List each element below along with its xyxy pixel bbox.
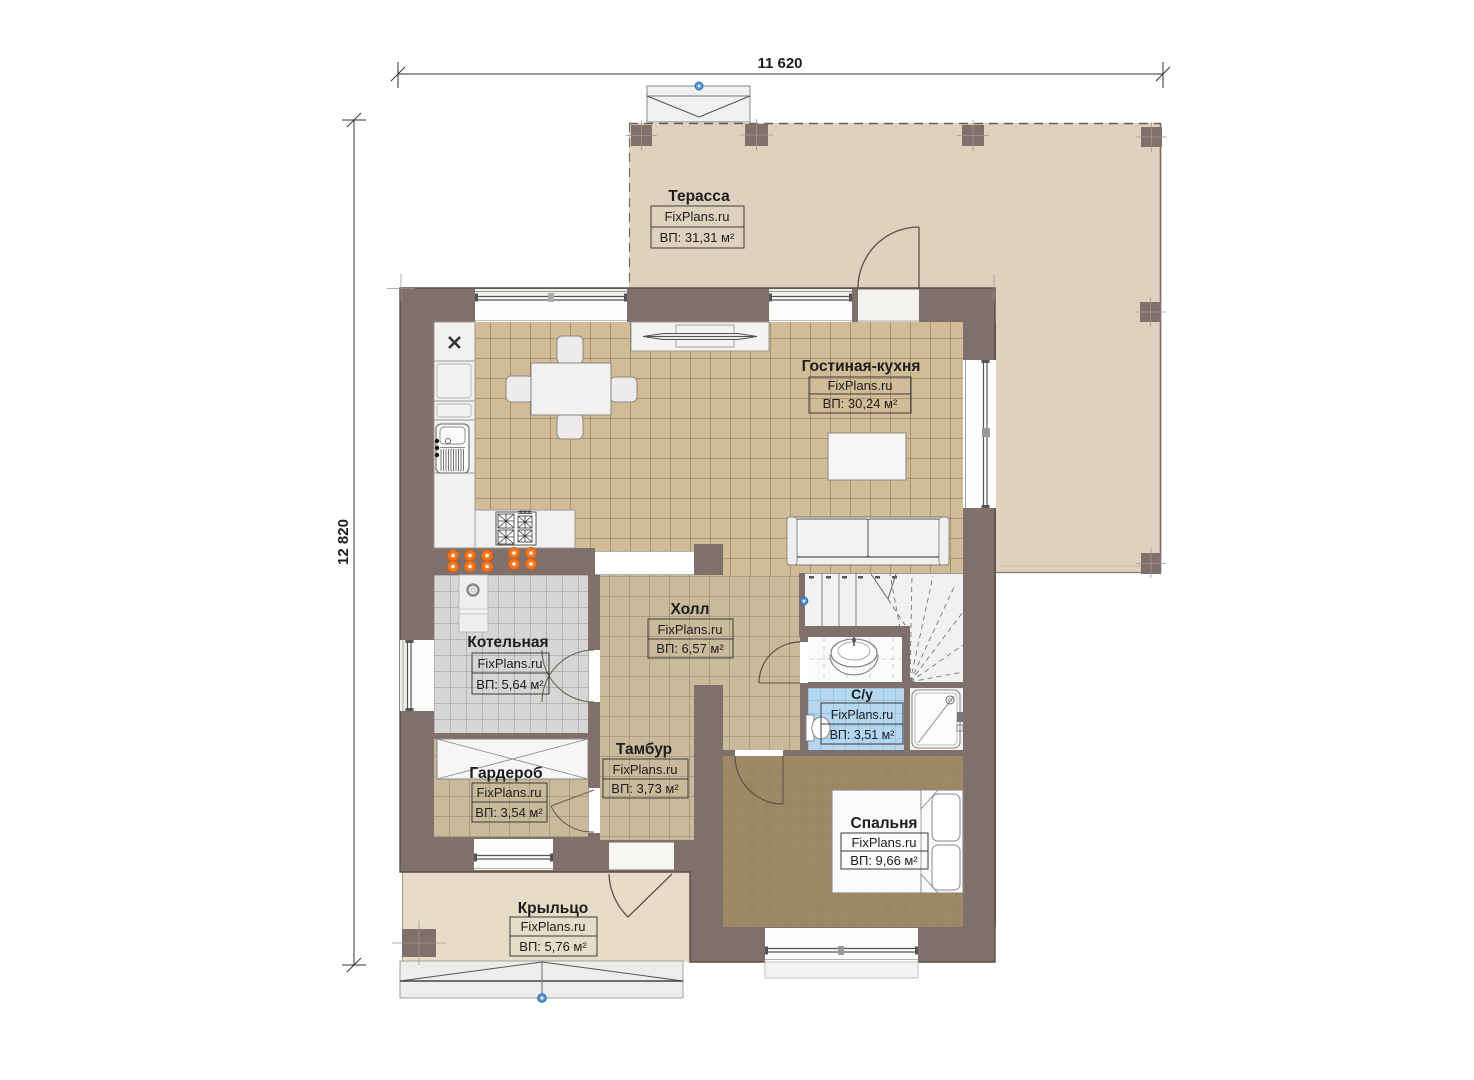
svg-text:Спальня: Спальня xyxy=(851,815,918,832)
svg-text:FixPlans.ru: FixPlans.ru xyxy=(476,785,541,800)
svg-text:Холл: Холл xyxy=(671,601,710,618)
svg-text:С/у: С/у xyxy=(851,686,873,702)
svg-text:ВП: 3,54 м²: ВП: 3,54 м² xyxy=(475,805,543,820)
svg-text:FixPlans.ru: FixPlans.ru xyxy=(827,378,892,393)
svg-text:FixPlans.ru: FixPlans.ru xyxy=(520,919,585,934)
svg-text:ВП: 3,51 м²: ВП: 3,51 м² xyxy=(830,728,895,742)
svg-text:ВП: 5,64 м²: ВП: 5,64 м² xyxy=(476,677,544,692)
svg-text:Котельная: Котельная xyxy=(467,634,548,651)
svg-text:11 620: 11 620 xyxy=(757,55,802,72)
svg-text:ВП: 9,66 м²: ВП: 9,66 м² xyxy=(850,853,918,868)
svg-text:FixPlans.ru: FixPlans.ru xyxy=(664,209,729,224)
svg-text:Терасса: Терасса xyxy=(668,188,730,205)
svg-text:FixPlans.ru: FixPlans.ru xyxy=(612,762,677,777)
svg-text:Крыльцо: Крыльцо xyxy=(518,900,589,917)
svg-text:ВП: 30,24 м²: ВП: 30,24 м² xyxy=(823,396,898,411)
svg-text:ВП: 5,76 м²: ВП: 5,76 м² xyxy=(519,939,587,954)
svg-text:ВП: 31,31 м²: ВП: 31,31 м² xyxy=(660,230,735,245)
svg-text:FixPlans.ru: FixPlans.ru xyxy=(657,622,722,637)
svg-text:ВП: 3,73 м²: ВП: 3,73 м² xyxy=(611,781,679,796)
svg-text:FixPlans.ru: FixPlans.ru xyxy=(851,835,916,850)
svg-text:FixPlans.ru: FixPlans.ru xyxy=(831,708,894,722)
svg-text:FixPlans.ru: FixPlans.ru xyxy=(477,656,542,671)
svg-text:Гардероб: Гардероб xyxy=(469,765,542,782)
svg-text:ВП: 6,57 м²: ВП: 6,57 м² xyxy=(656,641,724,656)
svg-text:12 820: 12 820 xyxy=(335,519,352,565)
svg-text:Тамбур: Тамбур xyxy=(616,741,672,758)
svg-text:Гостиная-кухня: Гостиная-кухня xyxy=(802,358,921,375)
